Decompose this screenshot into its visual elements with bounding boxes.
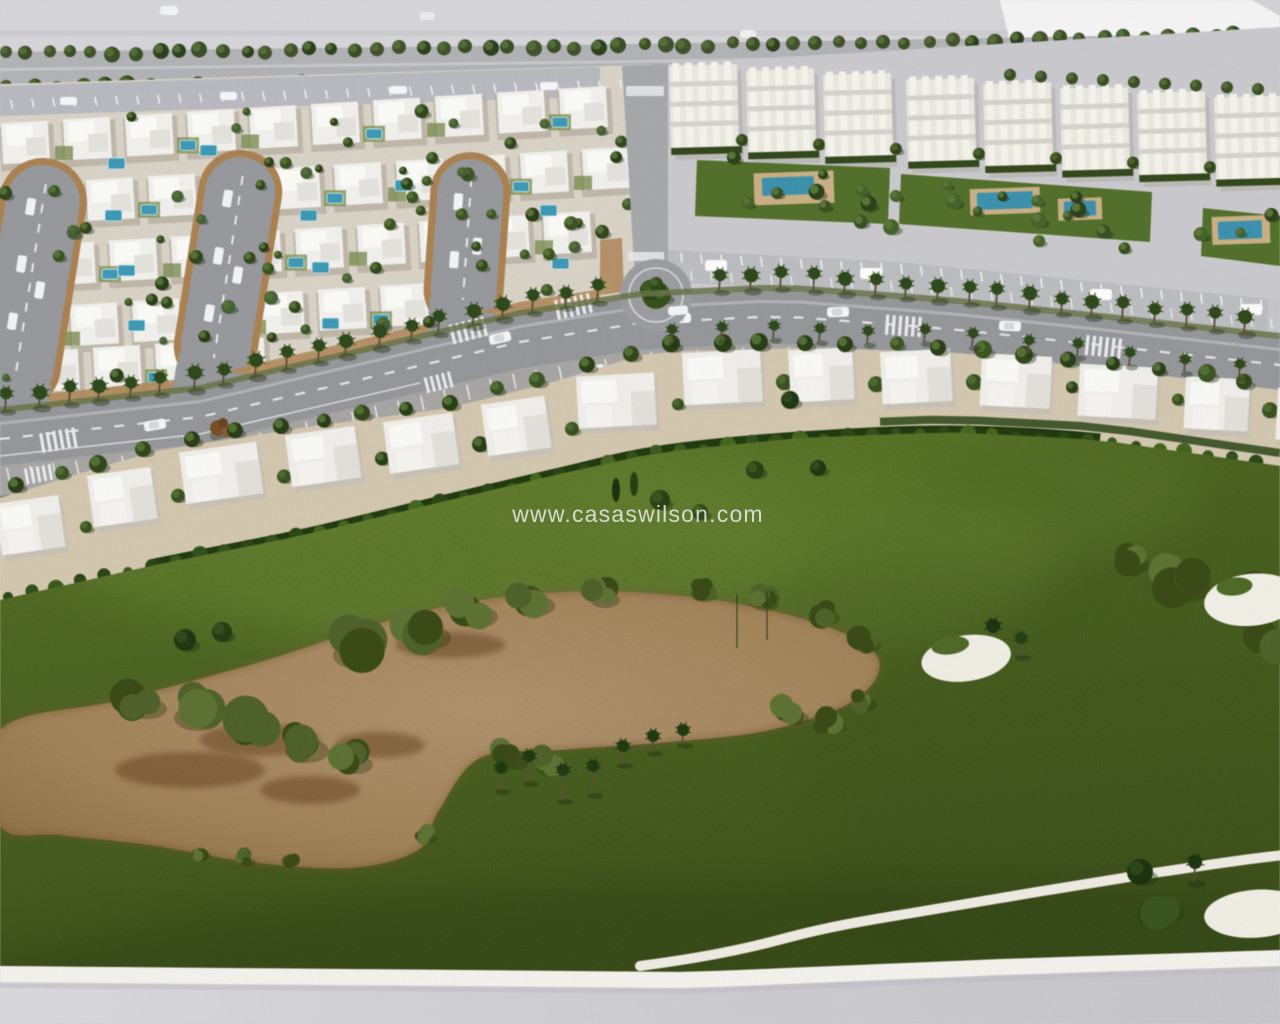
svg-text:www.casaswilson.com: www.casaswilson.com (511, 501, 764, 527)
